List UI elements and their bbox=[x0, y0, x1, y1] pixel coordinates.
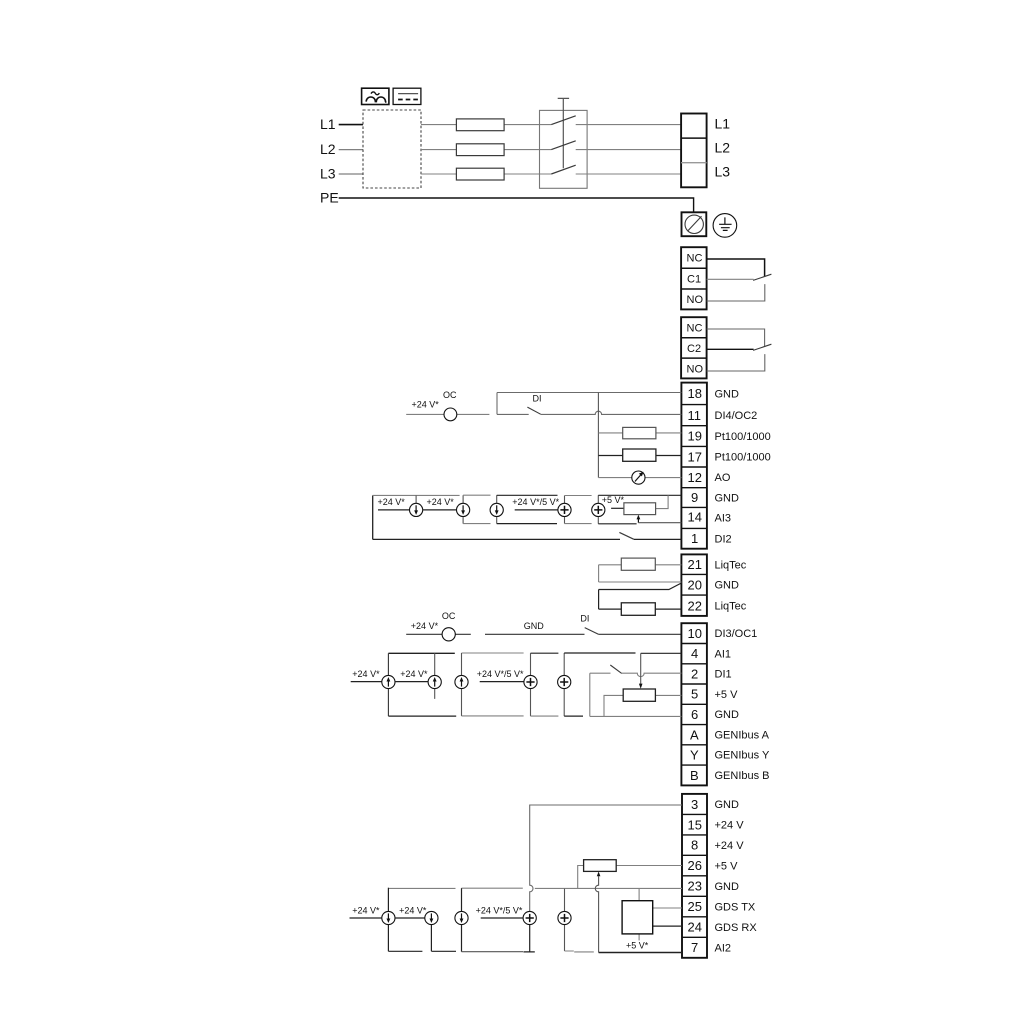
svg-text:9: 9 bbox=[691, 490, 698, 505]
svg-text:2: 2 bbox=[691, 667, 698, 682]
svg-text:20: 20 bbox=[688, 578, 702, 593]
svg-text:L2: L2 bbox=[715, 139, 731, 155]
svg-text:LiqTec: LiqTec bbox=[715, 600, 747, 612]
svg-text:DI: DI bbox=[533, 393, 542, 403]
svg-text:DI3/OC1: DI3/OC1 bbox=[715, 628, 758, 640]
svg-text:+24 V*: +24 V* bbox=[427, 497, 455, 507]
svg-text:GND: GND bbox=[715, 580, 740, 592]
svg-text:DI1: DI1 bbox=[715, 669, 732, 681]
svg-text:+24 V*: +24 V* bbox=[400, 669, 428, 679]
svg-text:+24 V*: +24 V* bbox=[399, 905, 427, 915]
svg-text:+24 V*/5 V*: +24 V*/5 V* bbox=[477, 669, 524, 679]
svg-text:C2: C2 bbox=[687, 343, 701, 355]
svg-text:+24 V*/5 V*: +24 V*/5 V* bbox=[512, 497, 559, 507]
svg-text:21: 21 bbox=[688, 557, 702, 572]
svg-text:AI1: AI1 bbox=[715, 648, 732, 660]
svg-text:B: B bbox=[690, 768, 699, 783]
svg-text:GDS TX: GDS TX bbox=[715, 901, 756, 913]
svg-text:GENIbus A: GENIbus A bbox=[715, 729, 770, 741]
svg-text:+5 V: +5 V bbox=[715, 689, 739, 701]
svg-text:OC: OC bbox=[442, 611, 456, 621]
svg-text:GND: GND bbox=[524, 621, 545, 631]
svg-text:+5 V: +5 V bbox=[715, 860, 739, 872]
svg-text:14: 14 bbox=[688, 510, 702, 525]
svg-text:Pt100/1000: Pt100/1000 bbox=[715, 451, 771, 463]
svg-text:AO: AO bbox=[715, 472, 731, 484]
svg-text:A: A bbox=[690, 727, 699, 742]
svg-text:NO: NO bbox=[687, 294, 704, 306]
svg-text:GENIbus B: GENIbus B bbox=[715, 770, 770, 782]
svg-text:17: 17 bbox=[688, 449, 702, 464]
svg-text:GND: GND bbox=[715, 388, 740, 400]
svg-text:DI: DI bbox=[580, 613, 589, 623]
svg-text:1: 1 bbox=[691, 531, 698, 546]
svg-text:GND: GND bbox=[715, 881, 740, 893]
svg-text:L1: L1 bbox=[320, 116, 336, 132]
svg-text:DI2: DI2 bbox=[715, 533, 732, 545]
svg-text:7: 7 bbox=[691, 940, 698, 955]
svg-text:NC: NC bbox=[687, 253, 703, 265]
svg-text:L3: L3 bbox=[320, 166, 336, 182]
svg-text:25: 25 bbox=[688, 899, 702, 914]
svg-text:GDS RX: GDS RX bbox=[715, 922, 758, 934]
svg-text:18: 18 bbox=[688, 386, 702, 401]
svg-text:PE: PE bbox=[320, 190, 339, 206]
svg-text:10: 10 bbox=[688, 626, 702, 641]
svg-text:8: 8 bbox=[691, 838, 698, 853]
svg-text:L2: L2 bbox=[320, 141, 336, 157]
svg-text:5: 5 bbox=[691, 687, 698, 702]
svg-text:AI2: AI2 bbox=[715, 942, 732, 954]
svg-text:LiqTec: LiqTec bbox=[715, 559, 747, 571]
svg-text:+24 V: +24 V bbox=[715, 819, 745, 831]
svg-text:3: 3 bbox=[691, 797, 698, 812]
svg-text:22: 22 bbox=[688, 598, 702, 613]
svg-text:+24 V: +24 V bbox=[715, 840, 745, 852]
svg-text:4: 4 bbox=[691, 646, 698, 661]
svg-text:L3: L3 bbox=[715, 163, 731, 179]
svg-text:+5 V*: +5 V* bbox=[602, 495, 625, 505]
svg-text:GND: GND bbox=[715, 492, 740, 504]
svg-text:6: 6 bbox=[691, 707, 698, 722]
svg-text:+24 V*: +24 V* bbox=[352, 905, 380, 915]
svg-text:GND: GND bbox=[715, 709, 740, 721]
svg-text:GND: GND bbox=[715, 799, 740, 811]
svg-text:GENIbus Y: GENIbus Y bbox=[715, 750, 770, 762]
svg-text:+24 V*: +24 V* bbox=[411, 621, 439, 631]
svg-text:C1: C1 bbox=[687, 274, 701, 286]
svg-text:19: 19 bbox=[688, 429, 702, 444]
svg-text:24: 24 bbox=[688, 920, 702, 935]
svg-text:L1: L1 bbox=[715, 115, 731, 131]
svg-text:+24 V*: +24 V* bbox=[412, 400, 440, 410]
svg-text:23: 23 bbox=[688, 879, 702, 894]
svg-text:11: 11 bbox=[688, 408, 702, 423]
svg-text:+5 V*: +5 V* bbox=[626, 940, 649, 950]
svg-text:26: 26 bbox=[688, 858, 702, 873]
svg-text:Y: Y bbox=[690, 748, 699, 763]
svg-text:AI3: AI3 bbox=[715, 513, 732, 525]
svg-text:+24 V*: +24 V* bbox=[378, 497, 406, 507]
svg-text:Pt100/1000: Pt100/1000 bbox=[715, 431, 771, 443]
svg-text:NO: NO bbox=[687, 363, 704, 375]
svg-text:OC: OC bbox=[443, 390, 457, 400]
svg-text:DI4/OC2: DI4/OC2 bbox=[715, 410, 758, 422]
svg-text:+24 V*/5 V*: +24 V*/5 V* bbox=[476, 905, 523, 915]
svg-text:12: 12 bbox=[688, 470, 702, 485]
svg-text:NC: NC bbox=[687, 323, 703, 335]
svg-text:15: 15 bbox=[688, 817, 702, 832]
svg-text:+24 V*: +24 V* bbox=[352, 669, 380, 679]
